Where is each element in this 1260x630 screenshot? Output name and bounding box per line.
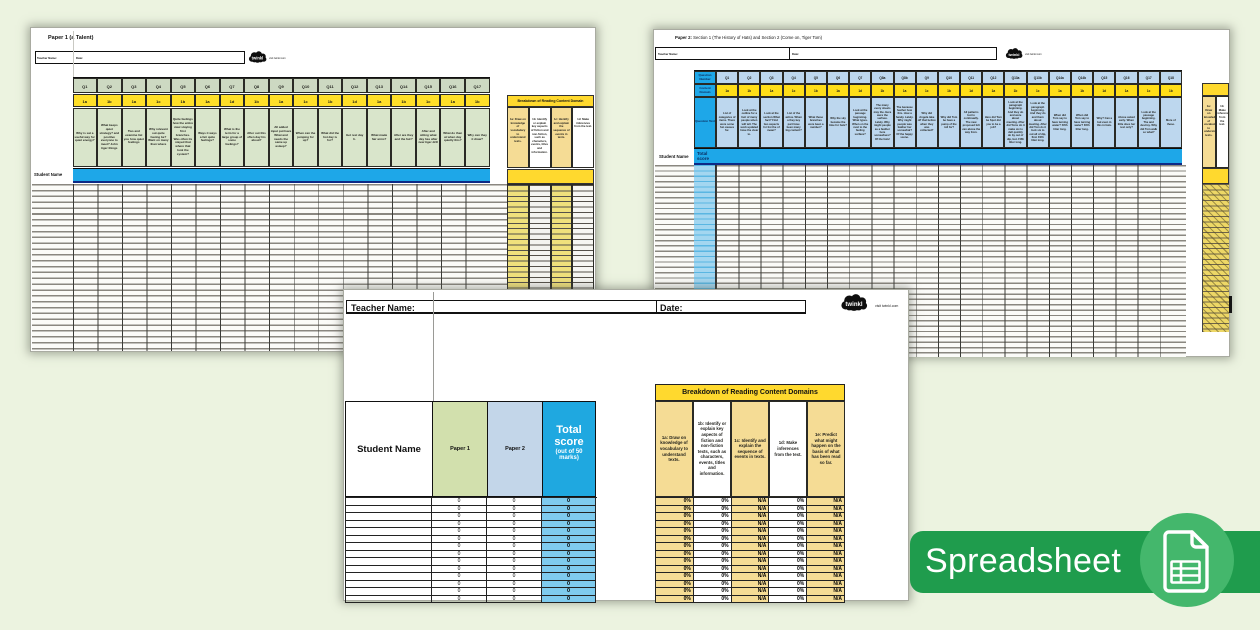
svg-text:twinkl: twinkl (252, 56, 264, 61)
svg-text:twinkl: twinkl (845, 302, 862, 308)
svg-text:twinkl: twinkl (1008, 52, 1019, 57)
